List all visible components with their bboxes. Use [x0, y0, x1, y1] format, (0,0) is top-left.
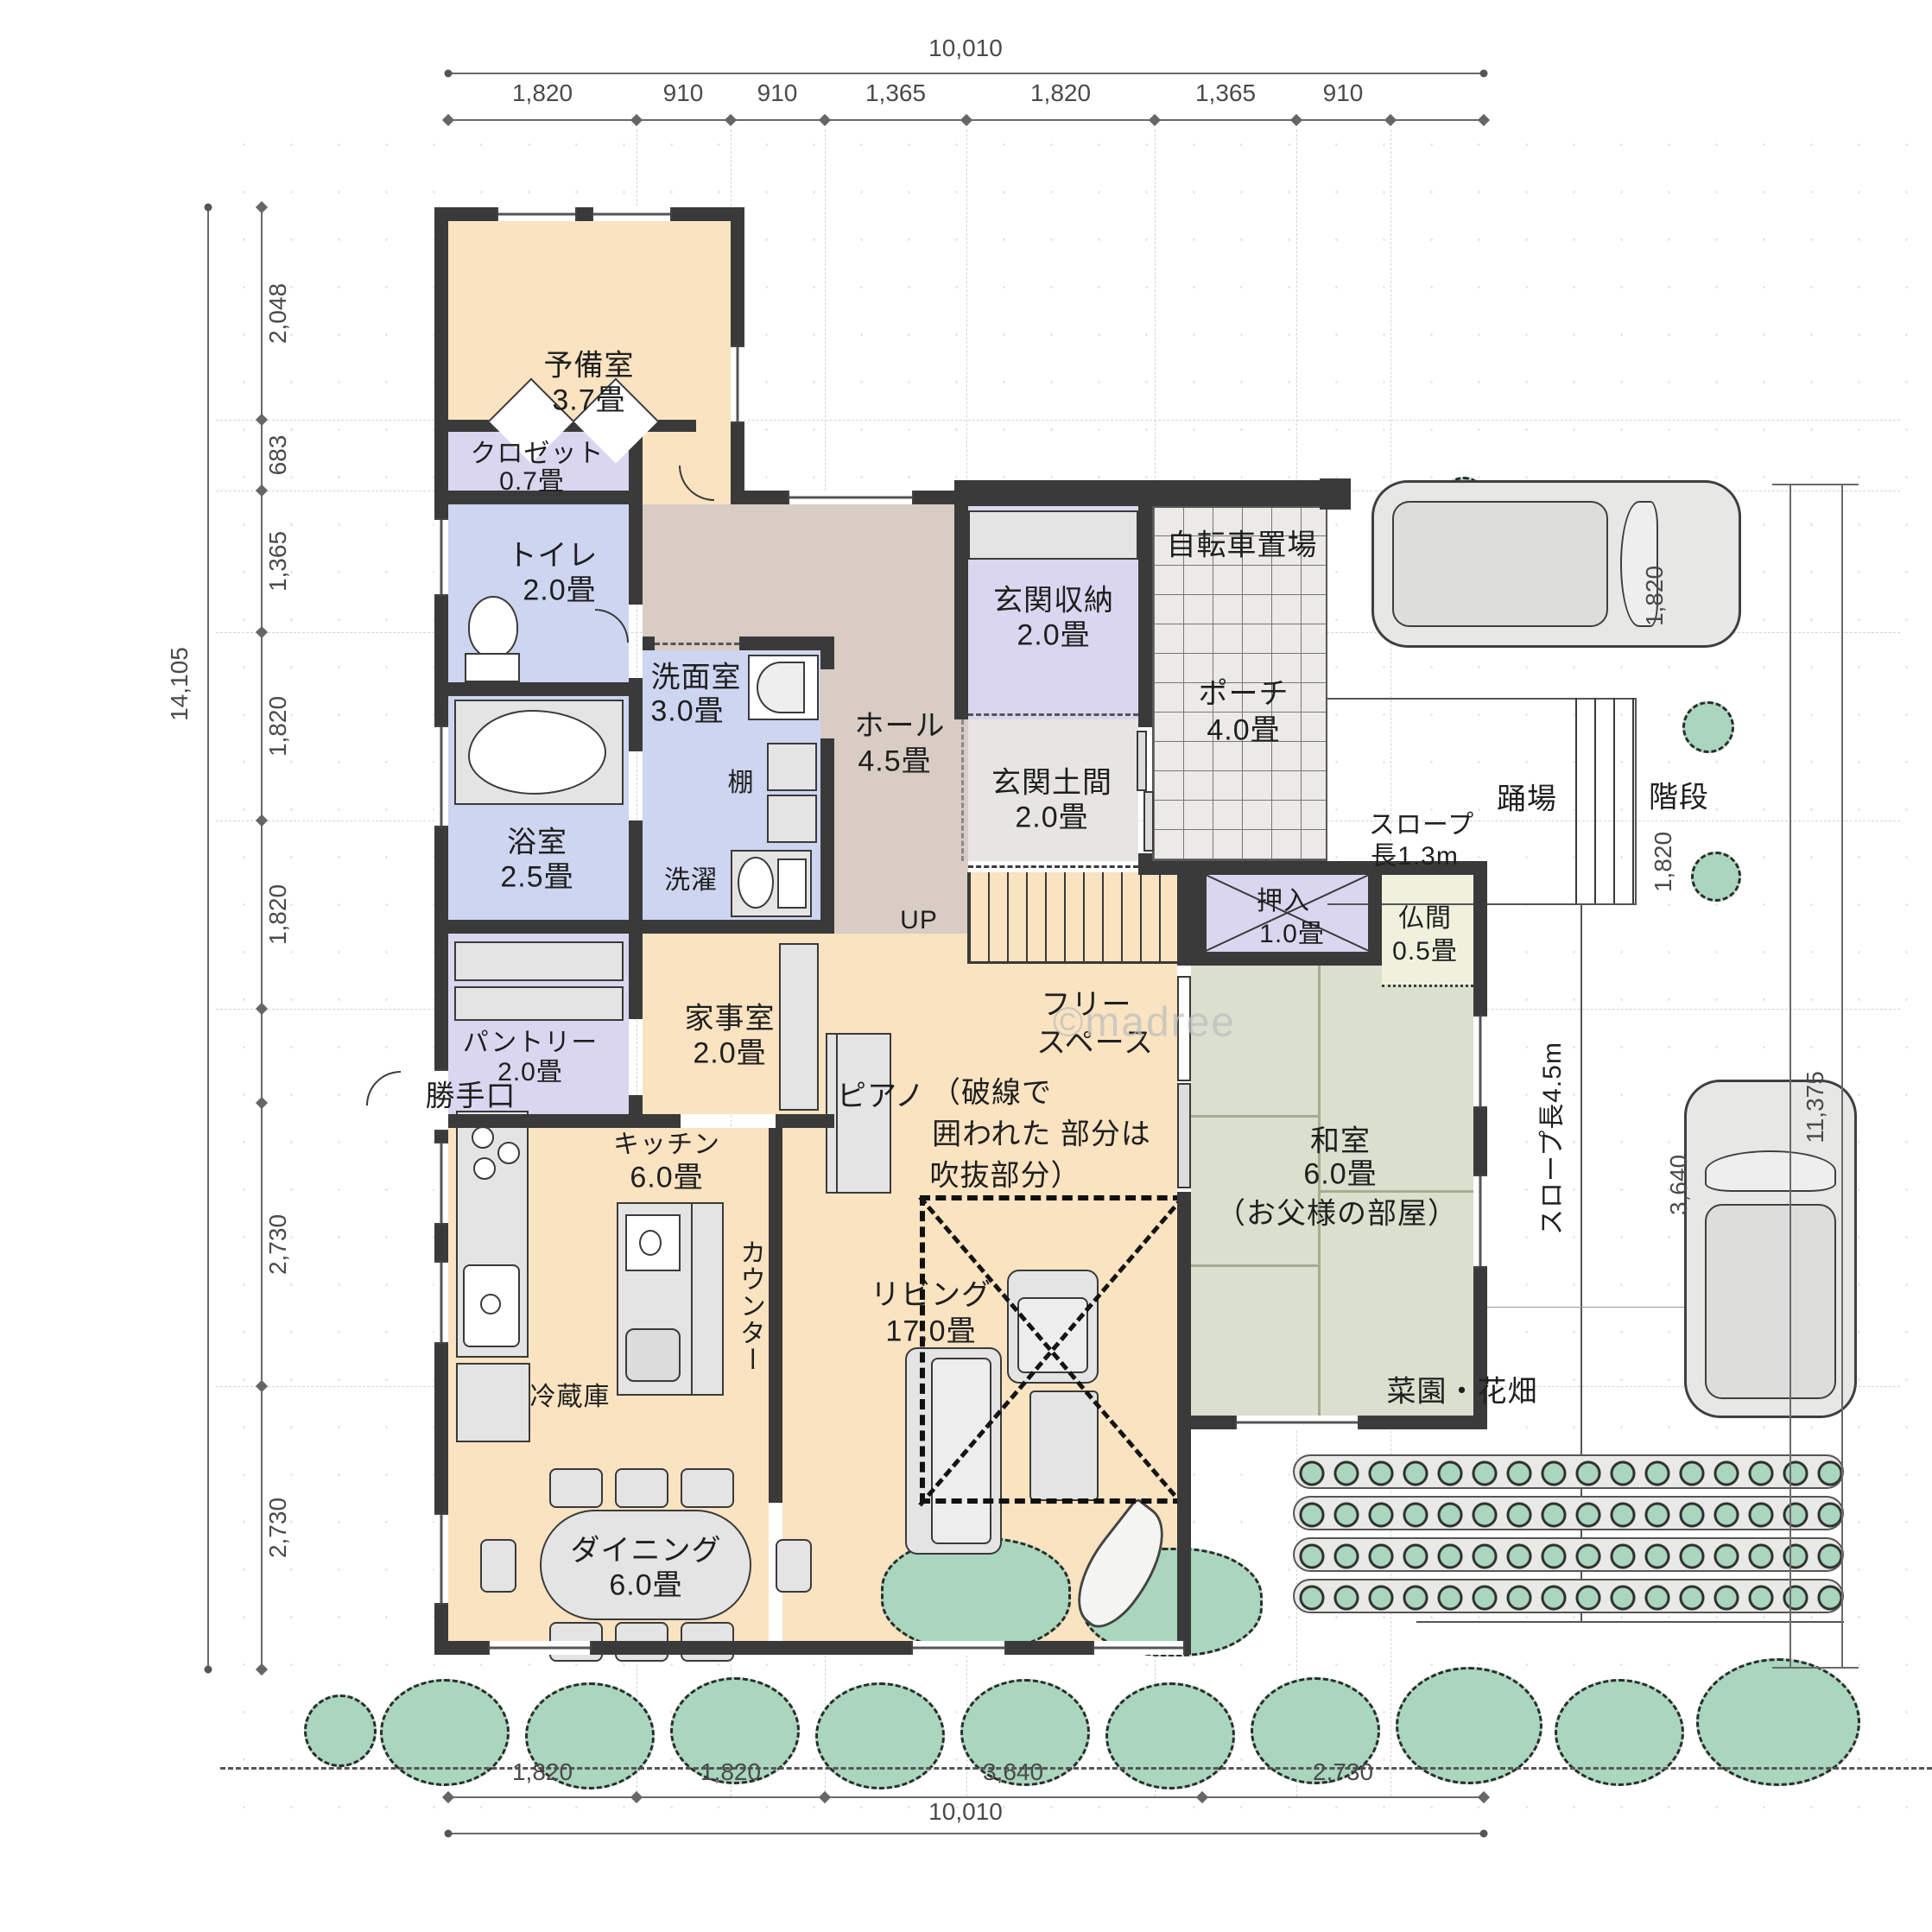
garden-bed-row: [1293, 1579, 1844, 1613]
toilet-tank: [465, 653, 520, 682]
property-line: [220, 1767, 1932, 1770]
wall: [643, 637, 655, 650]
room-kitchen-size: 6.0畳: [630, 1154, 703, 1196]
fridge: [456, 1363, 530, 1442]
pantry-shelf: [454, 941, 624, 981]
hedge-bush: [380, 1679, 510, 1786]
dim-dot: [1480, 70, 1488, 78]
wall: [769, 1128, 782, 1503]
window: [788, 491, 914, 504]
up-label: UP: [900, 906, 938, 935]
window: [1473, 1175, 1487, 1268]
pantry-shelf: [454, 986, 624, 1021]
room-yobishitsu-size: 3.7畳: [552, 377, 625, 419]
wall: [434, 1114, 643, 1128]
washer-tray: [777, 858, 807, 909]
window: [434, 725, 448, 827]
dim-left-seg: 1,820: [264, 884, 292, 945]
wall: [434, 920, 643, 934]
dim-bottom-total: 10,010: [928, 1798, 1003, 1826]
dim-left-seg: 683: [264, 435, 292, 476]
tana-label: 棚: [728, 761, 755, 799]
dim-bottom-seg: 2,730: [1313, 1758, 1373, 1786]
window: [592, 207, 672, 221]
room-kaji-size: 2.0畳: [693, 1029, 766, 1072]
wall: [643, 920, 834, 934]
tatami-line: [1191, 1264, 1318, 1267]
window: [434, 1513, 448, 1605]
dim-line: [261, 207, 263, 1669]
porch-size: 4.0畳: [1207, 706, 1280, 749]
car-windshield: [1705, 1150, 1836, 1192]
window: [488, 1641, 592, 1655]
dim-dot: [445, 70, 453, 78]
dim-left-seg: 1,820: [264, 696, 292, 757]
dim-line: [1841, 484, 1843, 1667]
dim-right-3640: 3,640: [1665, 1155, 1693, 1215]
dim-top-seg: 910: [663, 79, 704, 107]
wall: [1177, 1192, 1191, 1429]
washer-drum: [738, 857, 774, 909]
room-living-size: 17.0畳: [885, 1308, 976, 1350]
room-washitsu-size: 6.0畳: [1303, 1150, 1377, 1193]
void-note-1: （破線で: [931, 1069, 1052, 1112]
dim-line: [1789, 484, 1791, 1667]
hall-step-dashed: [968, 865, 1138, 868]
island-line: [691, 1202, 693, 1396]
car-cabin: [1705, 1204, 1836, 1399]
dim-right-total: 11,375: [1802, 1071, 1829, 1143]
room-senmen-size: 3.0畳: [650, 687, 724, 730]
island-seat: [625, 1328, 681, 1382]
dim-top-seg: 1,365: [1195, 79, 1256, 107]
slope13-length: 長1.3m: [1371, 834, 1459, 872]
dim-left-seg: 1,365: [264, 531, 292, 592]
room-toilet-size: 2.0畳: [523, 567, 596, 609]
dim-dot: [205, 1666, 212, 1674]
dim-top-seg: 910: [757, 79, 798, 107]
entrance-sliding-door: [1143, 791, 1154, 852]
south-parking-line: [1416, 1621, 1844, 1623]
window: [434, 1261, 448, 1344]
wall: [1177, 952, 1382, 966]
garden-bed-row: [1293, 1496, 1844, 1530]
dim-left-seg: 2,730: [264, 1498, 292, 1558]
hedge-bush: [815, 1682, 945, 1789]
outdoor-stair-treads: [1575, 698, 1636, 903]
vanity-basin: [757, 662, 805, 713]
wall: [820, 738, 834, 934]
sink-faucet: [480, 1294, 501, 1314]
wall: [629, 682, 643, 751]
dim-left-total: 14,105: [166, 647, 193, 721]
dim-bottom-seg: 1,820: [512, 1758, 573, 1786]
dim-left-seg: 2,730: [264, 1214, 292, 1275]
dim-line: [448, 73, 1484, 74]
room-closet-size: 0.7畳: [499, 459, 565, 497]
wall: [434, 207, 744, 221]
odoriba-label: 踊場: [1497, 776, 1557, 818]
window: [497, 207, 577, 221]
room-oshiire-size: 1.0畳: [1259, 912, 1325, 950]
dim-dot: [205, 204, 212, 212]
room-butsuma-size: 0.5畳: [1392, 929, 1458, 967]
dining-chair: [615, 1468, 668, 1508]
dim-top-total: 10,010: [928, 35, 1003, 62]
butsuma-dotted-edge: [1382, 985, 1473, 987]
kaji-desk: [779, 943, 819, 1111]
reizoko-label: 冷蔵庫: [530, 1375, 611, 1413]
hedge-bush: [1555, 1679, 1684, 1786]
floor-plan: 10,010 1,820 910 910 1,365 1,820 1,365 9…: [0, 0, 1932, 1932]
genkan-shoe-shelf: [968, 510, 1138, 560]
katteguchi-label: 勝手口: [426, 1073, 516, 1115]
washitsu-note: （お父様の部屋）: [1216, 1190, 1458, 1232]
window: [731, 345, 744, 423]
hedge-bush: [1105, 1682, 1235, 1789]
stove-burner: [472, 1126, 494, 1149]
senmen-door-dashed: [655, 643, 739, 645]
dim-top-seg: 1,820: [512, 79, 573, 107]
dining-chair: [549, 1468, 603, 1508]
window: [434, 1142, 448, 1225]
tree: [1691, 852, 1741, 902]
room-genkan-doma-size: 2.0畳: [1015, 794, 1088, 836]
tree: [1682, 701, 1734, 753]
doma-step-dashed: [961, 719, 964, 861]
tatami-line: [1191, 1115, 1318, 1118]
window: [434, 518, 448, 596]
washitsu-sliding-door: [1177, 1083, 1191, 1188]
dim-right-1820-car: 1,820: [1641, 566, 1669, 626]
dining-chair: [776, 1539, 812, 1593]
room-dining-size: 6.0畳: [609, 1561, 682, 1604]
bathtub: [468, 710, 606, 795]
shelf-tana: [767, 743, 817, 791]
room-genkan-shuno-size: 2.0畳: [1017, 611, 1090, 654]
wall: [1473, 875, 1487, 1429]
room-hall-size: 4.5畳: [858, 738, 931, 780]
stove-burner: [497, 1142, 520, 1164]
window: [1093, 1641, 1185, 1655]
wall: [434, 682, 643, 696]
wall: [820, 637, 834, 669]
slope45-label: スロープ長4.5m: [1530, 1042, 1568, 1235]
dim-bottom-seg: 1,820: [700, 1758, 761, 1786]
dim-top-seg: 910: [1323, 79, 1364, 107]
dim-line: [1772, 484, 1859, 485]
room-bath-size: 2.5畳: [500, 853, 573, 896]
dim-top-seg: 1,820: [1030, 79, 1091, 107]
kaidan-label: 階段: [1649, 774, 1709, 816]
shelf-tana: [767, 795, 817, 843]
island-faucet: [639, 1230, 662, 1256]
wall: [954, 480, 1327, 506]
counter-label: カウンター: [731, 1239, 769, 1373]
sentaku-label: 洗濯: [664, 858, 718, 896]
void-note-2: 囲われた 部分は: [932, 1111, 1151, 1153]
dim-dot: [1480, 1830, 1488, 1838]
garden-label: 菜園・花畑: [1387, 1368, 1538, 1410]
wall: [629, 820, 643, 934]
dim-top-seg: 1,365: [865, 79, 926, 107]
dim-right-1820-stair: 1,820: [1650, 832, 1677, 892]
hedge-bush: [304, 1694, 377, 1767]
entrance-sliding-door: [1137, 731, 1147, 791]
shuno-dashed-edge: [968, 713, 1138, 716]
dim-dot: [445, 1830, 453, 1838]
watermark: ©madree: [1053, 999, 1236, 1047]
dining-chair: [480, 1539, 516, 1593]
toilet-bowl: [468, 596, 518, 658]
garden-bed-row: [1293, 1537, 1844, 1572]
dining-chair: [681, 1468, 734, 1508]
dim-line: [1772, 1667, 1859, 1669]
stairs-treads: [967, 872, 1177, 964]
window: [1235, 1416, 1359, 1429]
bicycle-label: 自転車置場: [1167, 522, 1318, 564]
stove-burner: [473, 1157, 496, 1180]
dim-bottom-seg: 3,640: [983, 1758, 1043, 1786]
wall: [1177, 1429, 1191, 1655]
dim-left-seg: 2,048: [264, 283, 292, 344]
window: [1473, 1015, 1487, 1108]
wall: [776, 1114, 834, 1128]
wall: [1138, 506, 1152, 727]
dim-line: [207, 207, 209, 1669]
void-note-3: 吹抜部分）: [930, 1152, 1081, 1194]
piano-label: ピアノ: [837, 1073, 925, 1115]
dim-line: [448, 1833, 1484, 1834]
window: [911, 1641, 1006, 1655]
wall: [629, 934, 643, 1019]
car-cabin: [1392, 501, 1608, 627]
wall: [954, 506, 968, 719]
garden-bed-row: [1293, 1454, 1844, 1489]
